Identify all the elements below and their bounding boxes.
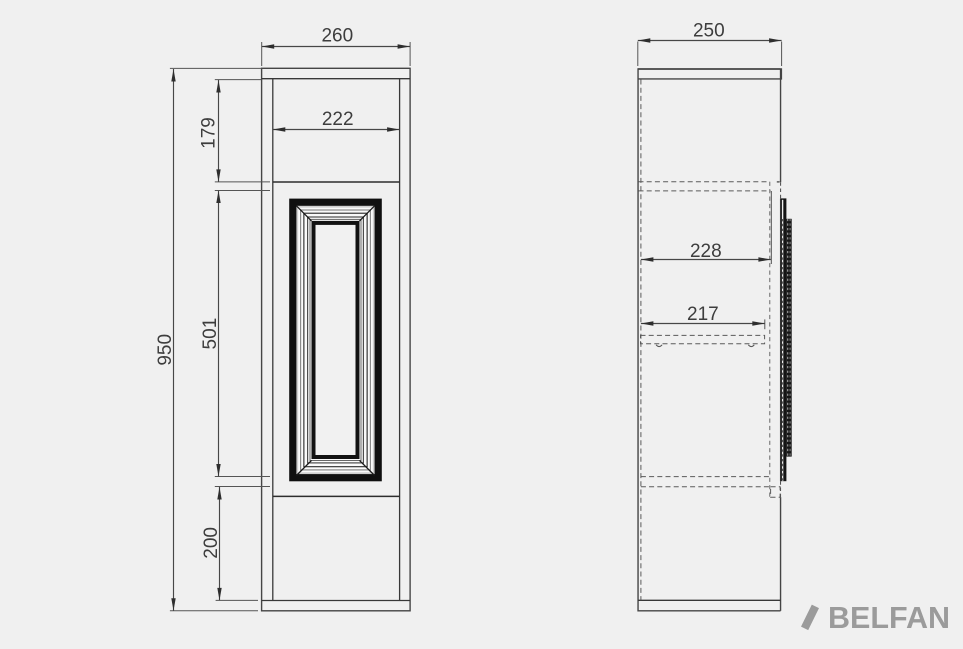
svg-text:179: 179 — [198, 117, 219, 149]
svg-text:260: 260 — [321, 26, 353, 47]
svg-text:950: 950 — [155, 334, 176, 366]
svg-text:200: 200 — [201, 527, 222, 559]
svg-text:250: 250 — [693, 21, 725, 42]
svg-text:217: 217 — [687, 304, 719, 325]
svg-text:501: 501 — [200, 318, 221, 350]
svg-text:222: 222 — [322, 109, 354, 130]
svg-text:BELFAN: BELFAN — [828, 601, 950, 635]
svg-text:228: 228 — [690, 241, 722, 262]
